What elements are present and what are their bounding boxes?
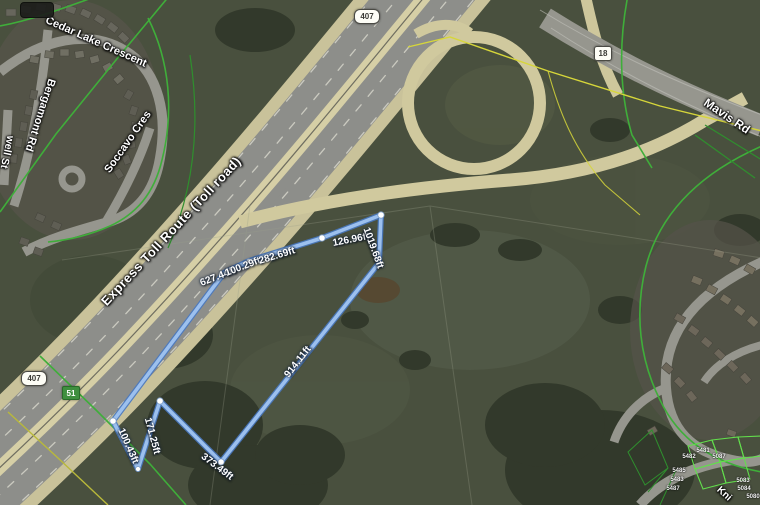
route-shield-18: 18 bbox=[594, 46, 612, 61]
route-shield-407-top: 407 bbox=[354, 9, 380, 24]
dark-badge bbox=[20, 2, 54, 18]
measure-vertex[interactable] bbox=[218, 459, 224, 465]
satellite-map bbox=[0, 0, 760, 505]
road-well-st bbox=[4, 110, 8, 185]
marker-51: 51 bbox=[62, 386, 80, 400]
measure-vertex[interactable] bbox=[247, 259, 252, 264]
map-canvas[interactable]: Cedar Lake Crescent Bergamont Rd Soccavo… bbox=[0, 0, 760, 505]
measure-vertex[interactable] bbox=[378, 212, 384, 218]
measure-vertex[interactable] bbox=[136, 467, 141, 472]
measure-vertex[interactable] bbox=[157, 398, 163, 404]
measure-vertex[interactable] bbox=[319, 235, 325, 241]
route-shield-407-bottom: 407 bbox=[21, 371, 47, 386]
measure-vertex[interactable] bbox=[110, 418, 116, 424]
